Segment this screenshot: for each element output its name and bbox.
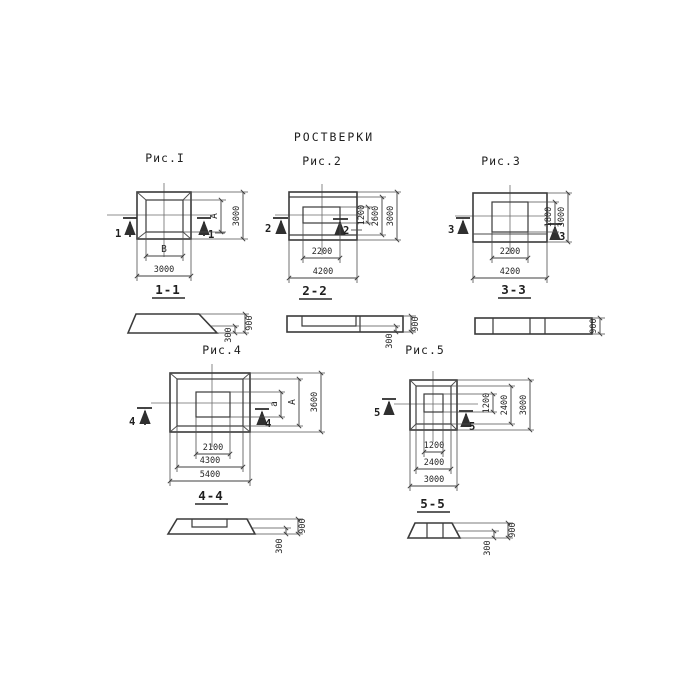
fig5-mark-left-label: 5 (374, 407, 380, 419)
fig4-dim-inner-width: 2100 (203, 443, 223, 453)
fig5-inner-rect (424, 394, 443, 412)
fig1-dim-inner-width: В (161, 244, 167, 255)
section-5-label: 5-5 (420, 496, 446, 511)
fig5-dim-outer-width: 3000 (424, 475, 444, 485)
fig1-inner-rect (146, 200, 183, 232)
section5-profile (408, 523, 460, 538)
section-1-label: 1-1 (155, 282, 181, 297)
figure-2-plan: Рис.2 2 2 1200 (265, 154, 401, 299)
fig4-dim-inner-height: а (269, 401, 280, 407)
section2-total-height: 900 (411, 316, 421, 331)
fig4-dim-mid-height: А (287, 399, 298, 405)
fig4-section-mark-right: 4 (255, 409, 271, 430)
fig4-axes (151, 364, 272, 447)
fig5-mark-right-label: 5 (469, 421, 475, 433)
fig2-dim-inner-width: 2200 (312, 247, 332, 257)
section-3-drawing: 900 (475, 318, 605, 334)
fig4-dim-mid-width: 4300 (200, 456, 220, 466)
fig4-mark-left-label: 4 (129, 416, 135, 428)
section2-step-height: 300 (385, 333, 395, 348)
fig3-dim-outer-height: 3000 (557, 207, 567, 227)
fig1-dimensions: А 3000 В 3000 (137, 192, 248, 281)
fig5-outer-rect (410, 380, 457, 430)
fig1-dim-outer-width: 3000 (154, 265, 174, 275)
section3-total-height: 900 (589, 318, 599, 333)
section1-profile (128, 314, 217, 333)
section-1-drawing: 300 900 (128, 314, 255, 343)
fig3-dim-inner-height: 1800 (544, 207, 554, 227)
figure-1-plan: Рис.I 1 1 А (107, 151, 248, 298)
fig3-mark-left-label: 3 (448, 224, 454, 236)
fig4-mark-right-label: 4 (265, 418, 271, 430)
fig2-dim-outer-width: 4200 (313, 267, 333, 277)
fig5-dim-mid-height: 2400 (500, 395, 510, 415)
fig2-mark-right-label: 2 (343, 225, 349, 237)
fig2-dimensions: 1200 2600 3000 2200 4200 (289, 192, 401, 283)
fig4-outer-rect (170, 373, 250, 432)
fig5-dim-inner-width: 1200 (424, 441, 444, 451)
page-title: РОСТВЕРКИ (294, 130, 374, 144)
section4-total-height: 900 (298, 518, 308, 533)
fig1-mark-left-label: 1 (115, 228, 121, 240)
fig4-body (170, 373, 250, 432)
section-4-label: 4-4 (198, 488, 224, 503)
fig5-axes (394, 371, 478, 442)
fig3-dim-inner-width: 2200 (500, 247, 520, 257)
section5-total-height: 900 (508, 522, 518, 537)
fig4-inner-rect (196, 392, 230, 417)
fig5-section-mark-left: 5 (374, 399, 396, 419)
section-2-label: 2-2 (302, 283, 328, 298)
fig2-dim-inner-height: 1200 (357, 205, 367, 225)
section-4-drawing: 300 900 (168, 518, 308, 553)
technical-drawing-canvas: РОСТВЕРКИ Рис.I 1 1 (0, 0, 700, 700)
fig4-caption: Рис.4 (202, 343, 242, 357)
fig4-section-mark-left: 4 (129, 408, 152, 428)
fig1-caption: Рис.I (145, 151, 185, 165)
fig5-body (410, 380, 457, 430)
section1-step-height: 300 (224, 327, 234, 342)
fig1-dim-outer-height: 3000 (232, 206, 242, 226)
fig5-caption: Рис.5 (405, 343, 445, 357)
fig2-mark-left-label: 2 (265, 223, 271, 235)
section-5-drawing: 300 900 (408, 522, 518, 555)
section5-step-height: 300 (483, 540, 493, 555)
fig2-dim-mid-height: 2600 (371, 206, 381, 226)
section2-profile (287, 316, 403, 332)
fig2-caption: Рис.2 (302, 154, 342, 168)
fig5-dim-outer-height: 3000 (519, 395, 529, 415)
fig3-dim-outer-width: 4200 (500, 267, 520, 277)
fig1-section-mark-left: 1 (115, 218, 137, 240)
fig2-section-mark-left: 2 (265, 218, 288, 235)
fig3-axes (455, 185, 545, 254)
fig5-dim-inner-height: 1200 (482, 393, 492, 413)
fig3-dimensions: 1800 3000 2200 4200 (473, 193, 572, 283)
figure-4-plan: Рис.4 4 4 а (129, 343, 325, 504)
fig2-axes (275, 184, 362, 255)
scanned-drawing-page: РОСТВЕРКИ Рис.I 1 1 (0, 0, 700, 700)
fig1-dim-inner-height: А (209, 213, 220, 219)
fig3-caption: Рис.3 (481, 154, 521, 168)
fig4-mid-rect (177, 379, 243, 426)
fig4-dim-outer-width: 5400 (200, 470, 220, 480)
fig3-section-mark-left: 3 (448, 218, 470, 236)
fig5-dimensions: 1200 2400 3000 1200 2400 3000 (410, 380, 534, 491)
figure-3-plan: Рис.3 3 3 1800 (448, 154, 572, 298)
section-3-label: 3-3 (501, 282, 527, 297)
figure-5-plan: Рис.5 5 5 1200 (374, 343, 534, 512)
fig2-dim-outer-height: 3000 (386, 206, 396, 226)
fig4-dim-outer-height: 3600 (310, 392, 320, 412)
section-2-drawing: 300 900 (287, 316, 421, 349)
fig3-mark-right-label: 3 (559, 231, 565, 243)
section4-step-height: 300 (275, 538, 285, 553)
section1-total-height: 900 (245, 315, 255, 330)
fig5-dim-mid-width: 2400 (424, 458, 444, 468)
fig5-mid-rect (416, 386, 451, 424)
